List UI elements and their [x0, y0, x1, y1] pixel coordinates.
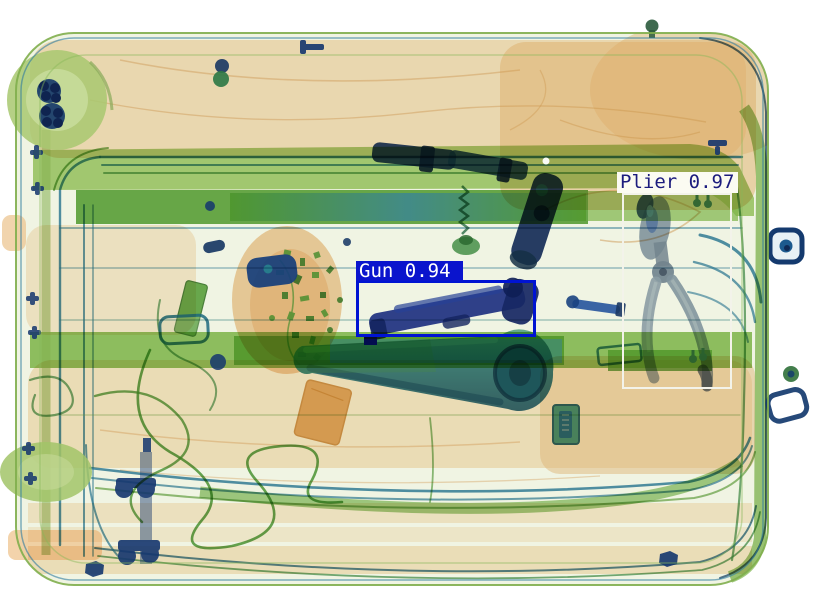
xray-scan-viewport: Gun 0.94 Plier 0.97 — [0, 0, 813, 600]
side-handle-loop — [766, 388, 809, 424]
gun-box-nub — [364, 337, 377, 345]
battery-pack — [553, 405, 579, 444]
padlock — [770, 230, 802, 262]
frame-buckle — [159, 315, 208, 344]
xray-scene — [0, 0, 813, 600]
